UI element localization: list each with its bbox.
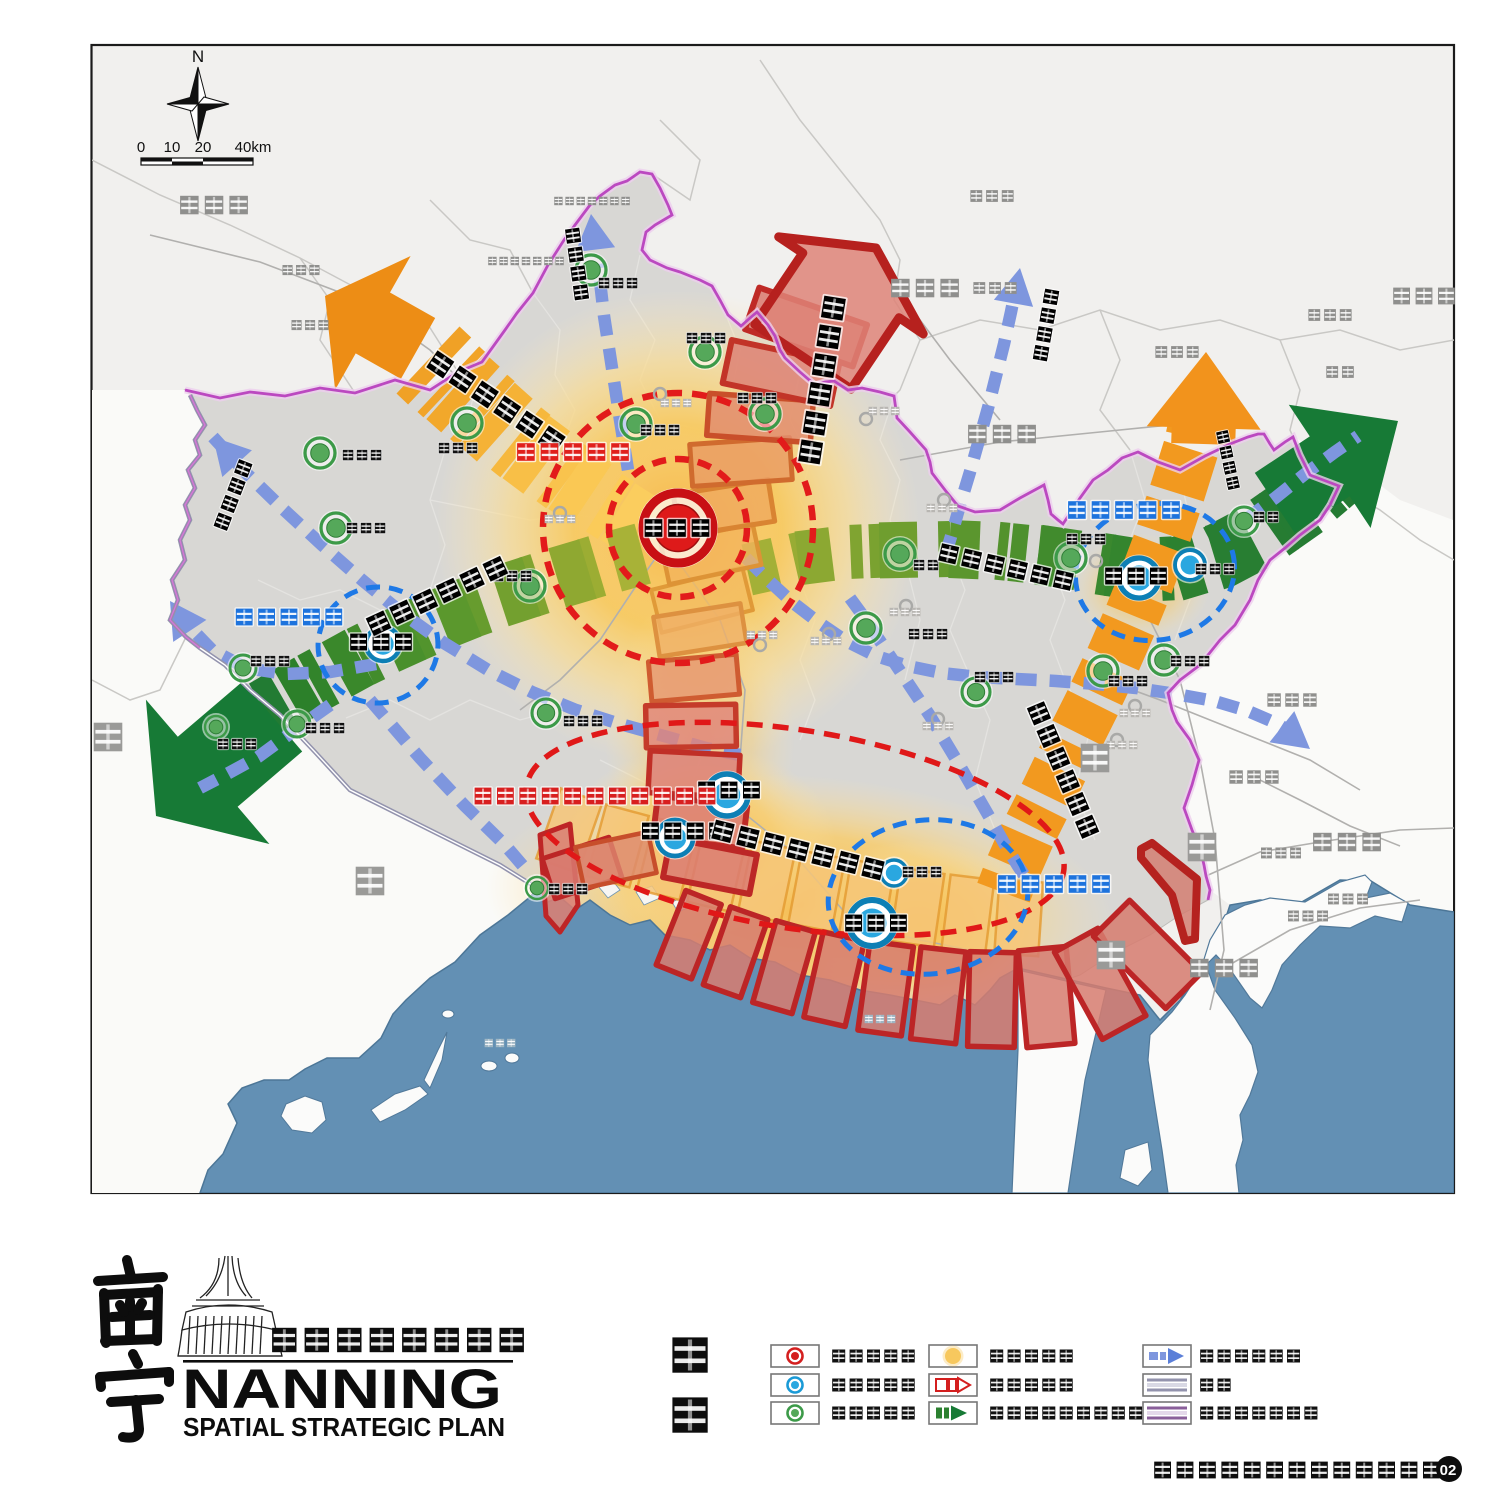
svg-text:02: 02 (1440, 1462, 1457, 1479)
svg-text:10: 10 (164, 139, 181, 156)
svg-text:SPATIAL STRATEGIC PLAN: SPATIAL STRATEGIC PLAN (183, 1412, 505, 1442)
svg-text:N: N (192, 47, 204, 66)
svg-text:0: 0 (137, 139, 145, 156)
svg-text:NANNING: NANNING (182, 1357, 502, 1420)
svg-text:20: 20 (195, 139, 212, 156)
svg-text:40km: 40km (235, 139, 272, 156)
